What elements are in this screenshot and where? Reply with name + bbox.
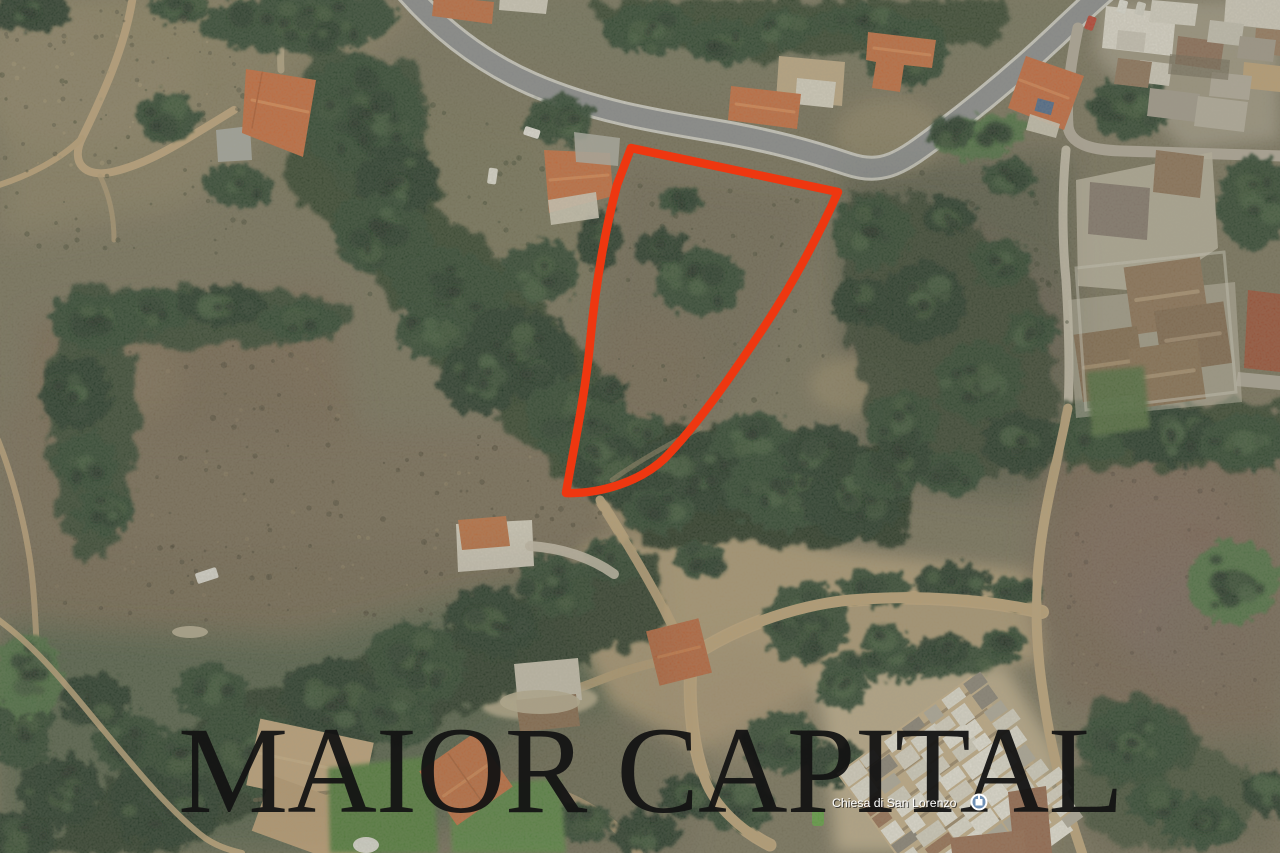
svg-text:Chiesa di San Lorenzo: Chiesa di San Lorenzo — [832, 796, 957, 810]
svg-text:MAIOR CAPITAL: MAIOR CAPITAL — [178, 702, 1123, 839]
